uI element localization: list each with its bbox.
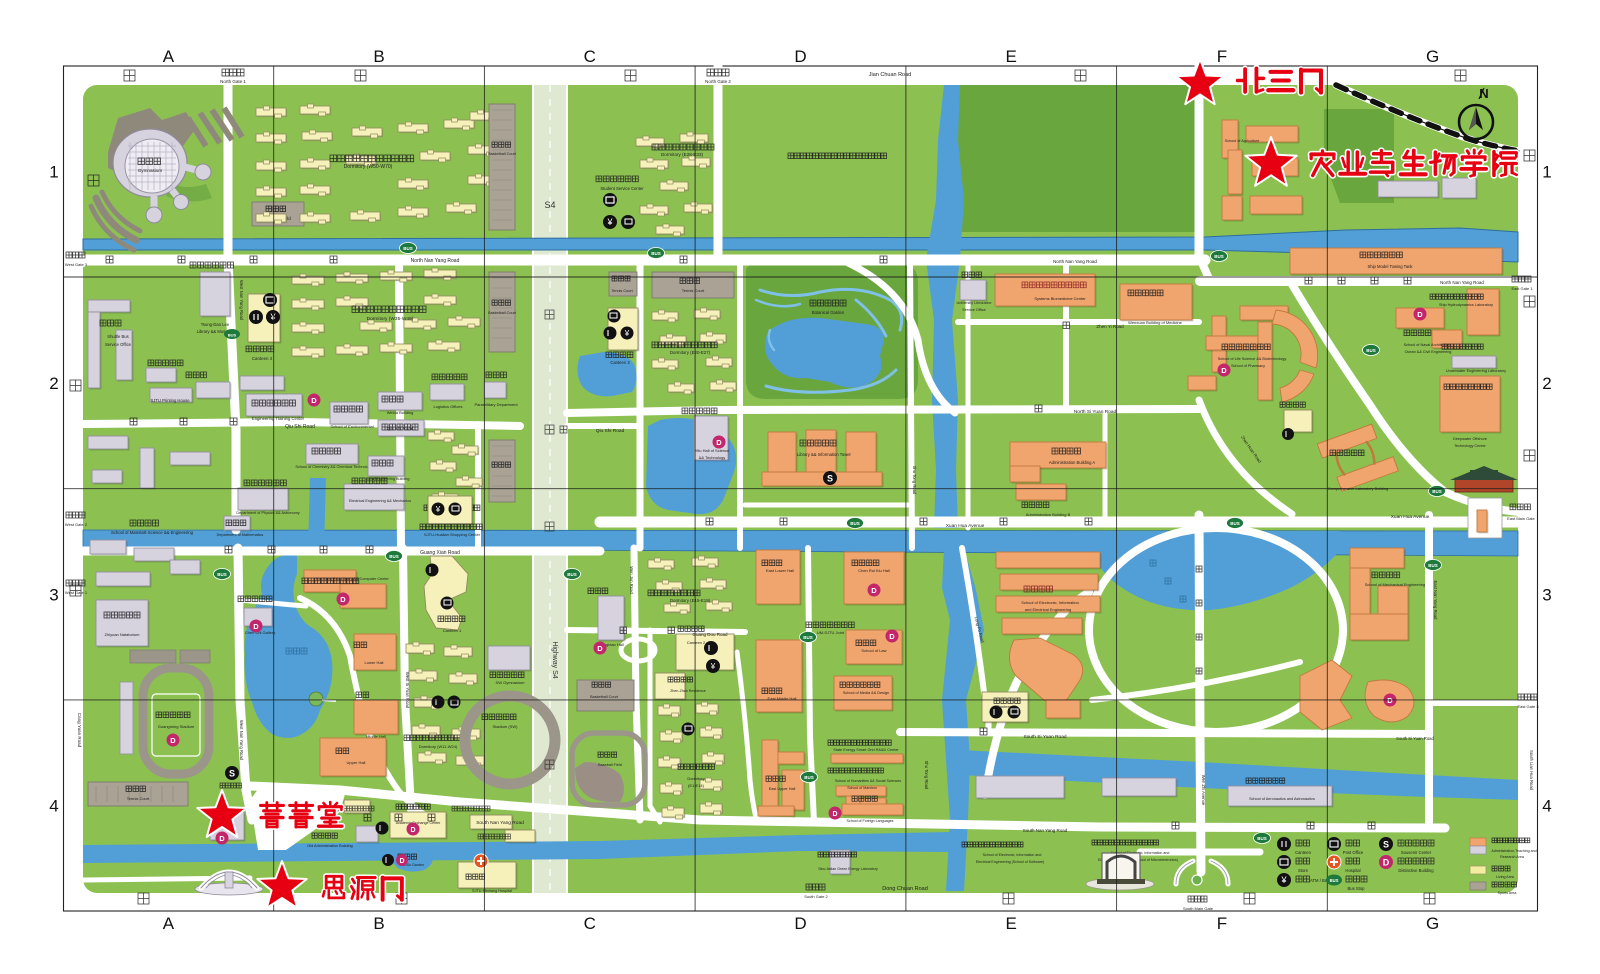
svg-text:Deepwater Offshore: Deepwater Offshore xyxy=(1453,437,1487,441)
svg-text:East Lower Hall: East Lower Hall xyxy=(766,568,794,573)
svg-text:S4: S4 xyxy=(544,200,555,210)
svg-text:Qiu Shi Road: Qiu Shi Road xyxy=(285,424,315,430)
svg-text:S: S xyxy=(229,769,235,779)
svg-text:SJTU Minhang Hospital: SJTU Minhang Hospital xyxy=(472,889,512,893)
svg-text:E: E xyxy=(1006,914,1017,933)
svg-text:Engineering Training Center: Engineering Training Center xyxy=(252,416,305,421)
svg-text:SW Gymnasium: SW Gymnasium xyxy=(496,680,526,685)
svg-text:D: D xyxy=(219,834,225,843)
svg-text:Dormitory (E28-E33): Dormitory (E28-E33) xyxy=(661,152,704,157)
svg-text:D: D xyxy=(253,622,259,631)
svg-text:BUS: BUS xyxy=(228,333,237,338)
svg-text:School of Aeronautics and Astr: School of Aeronautics and Astronautics xyxy=(1249,797,1315,801)
svg-text:BUS: BUS xyxy=(804,775,814,780)
svg-text:S: S xyxy=(1383,840,1389,850)
svg-text:Weida Building: Weida Building xyxy=(387,410,414,415)
svg-text:School of Life Science && Biot: School of Life Science && Biotechnology xyxy=(1218,357,1287,361)
svg-text:Jian Chuan Road: Jian Chuan Road xyxy=(869,72,912,78)
svg-text:School of Law: School of Law xyxy=(861,648,886,653)
svg-text:D: D xyxy=(1387,696,1393,705)
svg-text:Cang Yuan Road: Cang Yuan Road xyxy=(77,713,82,748)
svg-text:D: D xyxy=(1383,858,1390,868)
svg-text:BUS: BUS xyxy=(1432,489,1442,494)
svg-text:Canteen 4: Canteen 4 xyxy=(252,356,273,361)
svg-text:Tennis Court: Tennis Court xyxy=(682,288,705,293)
svg-text:Research Area: Research Area xyxy=(1500,855,1524,859)
svg-text:South Si Yuan Road: South Si Yuan Road xyxy=(1396,736,1434,741)
svg-text:Tennis Court: Tennis Court xyxy=(127,796,150,801)
svg-text:State Energy Smart Grid R&&D C: State Energy Smart Grid R&&D Center xyxy=(833,748,899,752)
svg-text:Highway S4: Highway S4 xyxy=(551,641,558,678)
svg-text:Ship Model Towing Tank: Ship Model Towing Tank xyxy=(1367,264,1413,269)
svg-text:Dormitory (W50-W70): Dormitory (W50-W70) xyxy=(344,164,393,170)
svg-text:BUS: BUS xyxy=(1428,563,1438,568)
svg-text:Shuttle Bus: Shuttle Bus xyxy=(107,334,128,339)
svg-text:D: D xyxy=(794,914,806,933)
svg-text:North Nan Yang Road: North Nan Yang Road xyxy=(1440,280,1484,285)
svg-text:Administration Building B: Administration Building B xyxy=(1026,512,1071,517)
svg-text:Paramilitary Department: Paramilitary Department xyxy=(474,402,518,407)
svg-text:West Nan Yang Road: West Nan Yang Road xyxy=(239,720,244,761)
svg-text:Souvenir Center: Souvenir Center xyxy=(1401,850,1432,855)
svg-text:(E1-E14): (E1-E14) xyxy=(688,783,705,788)
svg-text:South Main Gate: South Main Gate xyxy=(1183,906,1214,911)
svg-text:Zhiyuan Natatorium: Zhiyuan Natatorium xyxy=(105,632,141,637)
svg-text:Dormitory (E15-E19): Dormitory (E15-E19) xyxy=(670,598,711,603)
svg-text:Basketball Court: Basketball Court xyxy=(488,311,517,315)
svg-text:Old Administration Building: Old Administration Building xyxy=(307,844,352,848)
svg-text:Wenxuan Building of Medicine: Wenxuan Building of Medicine xyxy=(1128,320,1183,325)
svg-text:B: B xyxy=(373,914,384,933)
svg-text:East Nan Yang Road: East Nan Yang Road xyxy=(1433,581,1438,621)
svg-text:D: D xyxy=(410,827,415,834)
svg-text:Electrical Engineering (School: Electrical Engineering (School of Softwa… xyxy=(976,860,1044,864)
svg-text:Dormitory (E20-E27): Dormitory (E20-E27) xyxy=(670,350,711,355)
svg-text:B: B xyxy=(373,47,384,66)
svg-text:BUS: BUS xyxy=(217,572,227,577)
svg-text:D: D xyxy=(871,586,877,595)
svg-text:A: A xyxy=(163,47,175,66)
svg-text:¥: ¥ xyxy=(710,662,716,671)
svg-text:Guangming Stadium: Guangming Stadium xyxy=(158,724,195,729)
svg-text:D: D xyxy=(597,644,603,653)
svg-text:School of Environmental: School of Environmental xyxy=(330,424,373,429)
svg-text:Basketball Court: Basketball Court xyxy=(488,152,517,156)
svg-text:School of Materials Science &&: School of Materials Science && Engineeri… xyxy=(111,530,194,535)
svg-text:Canteen 3: Canteen 3 xyxy=(610,360,630,365)
svg-text:North Gate 2: North Gate 2 xyxy=(705,79,731,84)
svg-text:D: D xyxy=(1221,366,1227,375)
svg-text:West Si Yuan Road: West Si Yuan Road xyxy=(405,672,410,709)
svg-text:Bus Stop: Bus Stop xyxy=(1348,886,1366,891)
svg-text:D: D xyxy=(399,858,404,865)
svg-text:Logistics Offices: Logistics Offices xyxy=(433,404,462,409)
svg-text:Department of Mathematics: Department of Mathematics xyxy=(217,533,264,537)
svg-text:Qiu Shi Road: Qiu Shi Road xyxy=(596,428,625,434)
svg-text:Ship Hydrodynamics Laboratory: Ship Hydrodynamics Laboratory xyxy=(1439,303,1493,307)
svg-text:SJTU Printing House: SJTU Printing House xyxy=(150,398,190,403)
svg-text:West Nan Yang Road: West Nan Yang Road xyxy=(239,280,244,321)
svg-text:Store: Store xyxy=(1298,868,1309,873)
svg-text:East Gate 1: East Gate 1 xyxy=(1511,286,1533,291)
svg-text:Systems Biomedicine Center: Systems Biomedicine Center xyxy=(1034,296,1086,301)
svg-text:BUS: BUS xyxy=(1230,521,1240,526)
svg-text:¥: ¥ xyxy=(624,329,630,338)
svg-text:BUS: BUS xyxy=(1330,878,1339,883)
svg-text:School of Electronic, Informat: School of Electronic, Information xyxy=(1021,600,1079,605)
svg-text:Ocean && Civil Engineering: Ocean && Civil Engineering xyxy=(1405,350,1452,354)
svg-text:Basketball Court: Basketball Court xyxy=(590,695,619,699)
svg-text:Underwater Engineering Laborat: Underwater Engineering Laboratory xyxy=(1446,369,1506,373)
svg-text:and Electrical Engineering: and Electrical Engineering xyxy=(1025,607,1071,612)
svg-text:BUS: BUS xyxy=(1214,254,1224,259)
svg-text:Sports Area: Sports Area xyxy=(1498,891,1517,895)
svg-text:North Nan Yang Road: North Nan Yang Road xyxy=(411,258,460,264)
svg-text:South Nan Yang Road: South Nan Yang Road xyxy=(1023,828,1068,833)
svg-text:Post Office: Post Office xyxy=(1343,850,1364,855)
svg-text:BUS: BUS xyxy=(803,635,813,640)
svg-text:Canteen 1: Canteen 1 xyxy=(443,628,462,633)
svg-text:BUS: BUS xyxy=(1366,348,1376,353)
svg-text:D: D xyxy=(716,438,722,447)
svg-text:Living Area: Living Area xyxy=(1496,875,1514,879)
svg-text:BUS: BUS xyxy=(651,251,661,256)
svg-text:School of Pharmacy: School of Pharmacy xyxy=(1231,364,1265,368)
svg-text:Shu Tong Road: Shu Tong Road xyxy=(924,761,929,790)
svg-text:Administration Building A: Administration Building A xyxy=(1049,460,1096,465)
svg-text:Guang Dou Road: Guang Dou Road xyxy=(692,632,728,637)
svg-text:4: 4 xyxy=(49,797,58,816)
svg-text:Upper Hall: Upper Hall xyxy=(347,760,366,765)
svg-text:South Gate 2: South Gate 2 xyxy=(804,894,828,899)
svg-text:Zhen Yi Road: Zhen Yi Road xyxy=(1096,324,1124,329)
svg-text:D: D xyxy=(170,736,176,745)
svg-text:BUS: BUS xyxy=(567,572,577,577)
svg-text:Service Office: Service Office xyxy=(962,308,986,312)
svg-text:School of Mechanical Engineeri: School of Mechanical Engineering xyxy=(1365,582,1425,587)
svg-text:Technology Center: Technology Center xyxy=(1454,444,1486,448)
svg-text:Student Service Center: Student Service Center xyxy=(600,186,644,191)
svg-text:Service Office: Service Office xyxy=(105,342,132,347)
svg-text:D: D xyxy=(1417,310,1423,319)
svg-text:SJTU-Hualian Shopping Center: SJTU-Hualian Shopping Center xyxy=(424,532,481,537)
svg-text:G: G xyxy=(1426,914,1439,933)
svg-text:Distinctive Building: Distinctive Building xyxy=(1398,868,1434,873)
svg-text:West Gate 1: West Gate 1 xyxy=(65,590,88,595)
svg-text:Dong Chuan Road: Dong Chuan Road xyxy=(882,886,928,892)
svg-text:D: D xyxy=(311,396,317,405)
svg-text:Stadium (SW): Stadium (SW) xyxy=(493,724,519,729)
svg-text:East Gate 3: East Gate 3 xyxy=(1517,704,1539,709)
svg-text:School of Agriculture: School of Agriculture xyxy=(1225,139,1260,143)
svg-text:¥: ¥ xyxy=(435,505,441,514)
svg-text:Xuan Hua Avenue: Xuan Hua Avenue xyxy=(1391,514,1430,520)
svg-text:Dormitory: Dormitory xyxy=(687,776,704,781)
svg-text:BUS: BUS xyxy=(850,521,860,526)
svg-text:BUS: BUS xyxy=(389,554,399,559)
svg-text:South Lian Hua Road: South Lian Hua Road xyxy=(1529,750,1534,791)
svg-text:BUS: BUS xyxy=(1257,836,1267,841)
svg-text:West Gate 3: West Gate 3 xyxy=(65,262,88,267)
svg-text:Yue-Kong Pao Library && Comput: Yue-Kong Pao Library && Computer Center xyxy=(315,577,389,581)
svg-text:1: 1 xyxy=(1542,163,1551,182)
svg-text:D: D xyxy=(340,595,346,604)
svg-text:Gymnasium: Gymnasium xyxy=(138,168,163,173)
svg-text:East Main Gate: East Main Gate xyxy=(1507,516,1535,521)
svg-text:Dormitory (W35-W49): Dormitory (W35-W49) xyxy=(367,316,414,322)
svg-text:Canteen: Canteen xyxy=(1295,850,1312,855)
svg-text:School of Marxism: School of Marxism xyxy=(847,786,877,790)
svg-text:Yifu Hall of Science: Yifu Hall of Science xyxy=(695,448,730,453)
svg-text:&& Technology: && Technology xyxy=(699,455,726,460)
svg-text:School of Foreign Languages: School of Foreign Languages xyxy=(847,819,894,823)
svg-text:South Si Yuan Road: South Si Yuan Road xyxy=(1023,734,1066,740)
svg-text:3: 3 xyxy=(49,585,58,604)
svg-text:¥: ¥ xyxy=(606,217,613,227)
svg-text:D: D xyxy=(832,811,837,818)
svg-text:2: 2 xyxy=(49,374,58,393)
svg-text:Shu Tong Road: Shu Tong Road xyxy=(912,466,917,495)
svg-text:Wen Zhi Avenue: Wen Zhi Avenue xyxy=(1201,775,1206,806)
svg-text:F: F xyxy=(1217,47,1227,66)
svg-text:Tsung-Dao Lee: Tsung-Dao Lee xyxy=(201,322,230,327)
svg-text:Department of Physics && Astro: Department of Physics && Astronomy xyxy=(236,511,299,515)
svg-text:F: F xyxy=(1217,914,1227,933)
svg-text:Canteen 2: Canteen 2 xyxy=(687,640,706,645)
svg-text:E: E xyxy=(1006,47,1017,66)
svg-text:Tennis Court: Tennis Court xyxy=(611,289,633,293)
svg-text:Lower Hall: Lower Hall xyxy=(365,660,384,665)
svg-text:Hospital: Hospital xyxy=(1345,868,1360,873)
svg-text:2: 2 xyxy=(1542,374,1551,393)
svg-text:Chen Rui Kiu Hall: Chen Rui Kiu Hall xyxy=(858,568,890,573)
svg-text:¥: ¥ xyxy=(269,312,276,322)
svg-text:South Nan Yang Road: South Nan Yang Road xyxy=(476,820,524,826)
svg-text:Dormitory (W11-W24): Dormitory (W11-W24) xyxy=(419,744,458,749)
svg-text:School of Humanities && Social: School of Humanities && Social Sciences xyxy=(835,779,901,783)
svg-text:Academic Exchange Center: Academic Exchange Center xyxy=(396,821,441,825)
svg-text:BUS: BUS xyxy=(403,246,413,251)
svg-text:Xuan Hua Avenue: Xuan Hua Avenue xyxy=(946,523,985,529)
svg-text:S: S xyxy=(827,474,833,484)
svg-text:4: 4 xyxy=(1542,797,1551,816)
svg-text:Wen Jun Road: Wen Jun Road xyxy=(629,566,634,594)
svg-text:North Si Yuan Road: North Si Yuan Road xyxy=(1074,409,1117,415)
svg-text:East Upper Hall: East Upper Hall xyxy=(769,787,796,791)
svg-text:University Limousine: University Limousine xyxy=(956,301,991,305)
svg-text:C: C xyxy=(584,914,596,933)
svg-text:Electrical Engineering && Mech: Electrical Engineering && Mechanics xyxy=(349,499,411,503)
svg-text:Zhen-Zhan Residence: Zhen-Zhan Residence xyxy=(670,689,706,693)
svg-text:Guang Xian Road: Guang Xian Road xyxy=(420,550,460,556)
svg-text:Sino-Italian Green Energy Labo: Sino-Italian Green Energy Laboratory xyxy=(818,867,878,871)
svg-text:School of Chemistry && Chemica: School of Chemistry && Chemical Technolo… xyxy=(295,465,372,469)
svg-text:¥: ¥ xyxy=(1280,875,1287,885)
svg-text:West Gate 2: West Gate 2 xyxy=(65,522,88,527)
svg-text:G: G xyxy=(1426,47,1439,66)
svg-text:North Nan Yang Road: North Nan Yang Road xyxy=(1053,259,1097,264)
svg-text:D: D xyxy=(794,47,806,66)
svg-text:Library && Information Tower: Library && Information Tower xyxy=(797,452,852,457)
svg-text:School of Electronic, Informat: School of Electronic, Information and xyxy=(983,853,1042,857)
svg-text:D: D xyxy=(889,632,895,641)
svg-text:School of Media && Design: School of Media && Design xyxy=(843,691,889,695)
svg-text:1: 1 xyxy=(49,163,58,182)
svg-text:3: 3 xyxy=(1542,585,1551,604)
svg-text:Qiu Shi Road: Qiu Shi Road xyxy=(387,426,414,431)
svg-text:A: A xyxy=(163,914,175,933)
svg-text:North Gate 1: North Gate 1 xyxy=(220,79,246,84)
svg-text:Baseball Field: Baseball Field xyxy=(598,763,622,767)
svg-text:C: C xyxy=(584,47,596,66)
svg-text:Civil Engineering Building: Civil Engineering Building xyxy=(366,477,409,481)
svg-text:Administration,Teaching and: Administration,Teaching and xyxy=(1491,849,1536,853)
svg-text:Botanical Garden: Botanical Garden xyxy=(812,310,845,315)
